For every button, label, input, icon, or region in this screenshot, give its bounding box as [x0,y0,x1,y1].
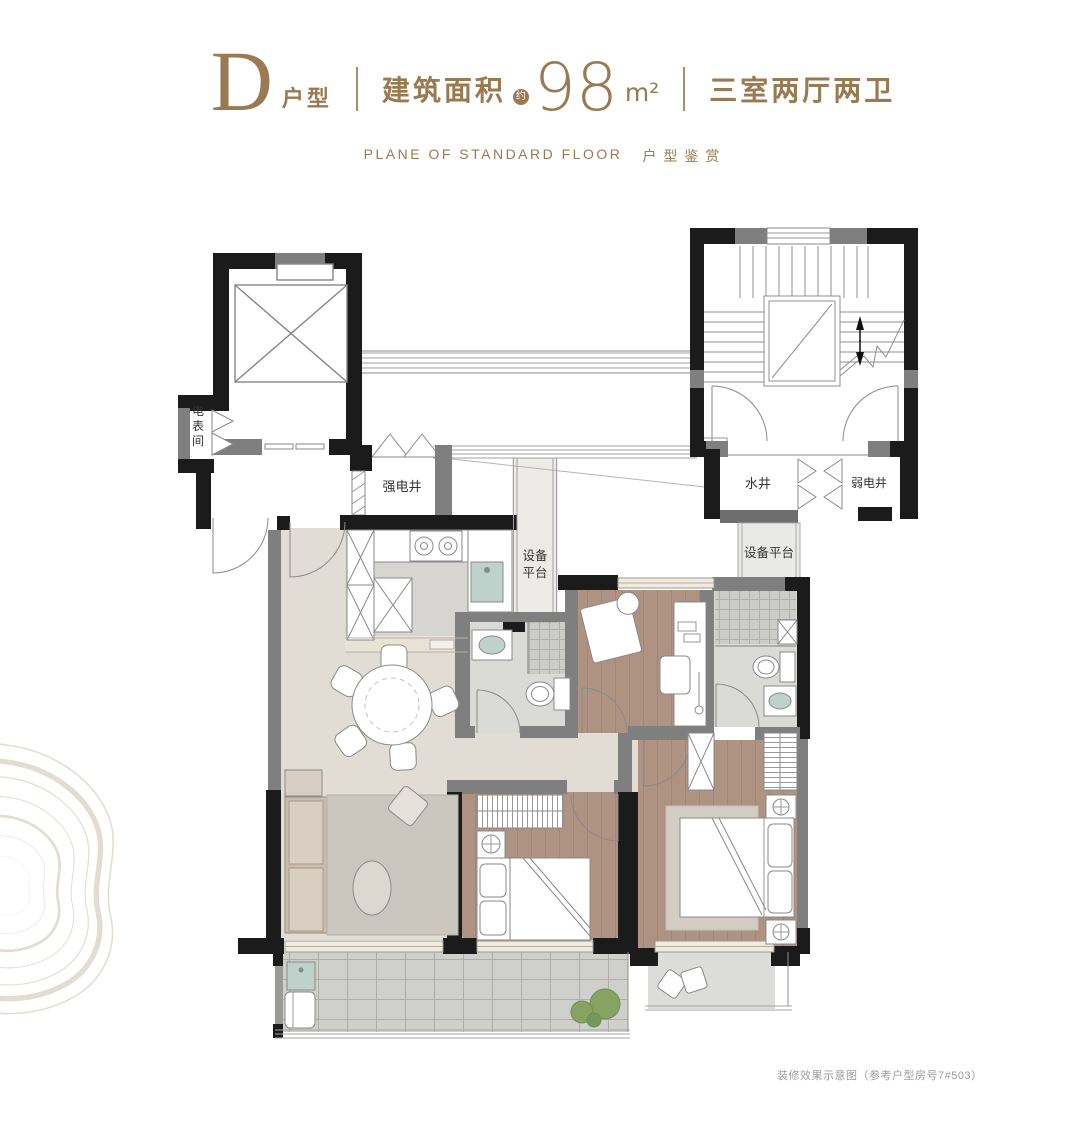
label-meter-room: 电表间 [190,404,206,449]
side-table [285,770,322,796]
approx-badge: 约 [513,89,529,105]
unit-letter: D [211,46,273,117]
pillow [768,871,792,913]
layout-label: 三室两厅两卫 [709,69,895,117]
footnote: 装修效果示意图（参考户型房号7#503） [777,1067,983,1083]
pillow [480,901,506,935]
ottoman [353,861,391,915]
master-window [655,941,774,952]
laundry-sink-icon [287,962,315,990]
stair-treads-icon [704,246,904,386]
header-divider [356,67,358,111]
stair-block [690,228,918,457]
label-strong-electric-shaft: 强电井 [363,479,441,494]
subtitle-zh: 户型鉴赏 [642,146,726,166]
stair-double-doors [712,386,898,441]
plan-header: D 户型 建筑面积 约 98 m² 三室两厅两卫 [0,46,1080,117]
pillow [480,864,506,897]
stove-icon [410,531,462,561]
sink-icon [769,693,791,709]
pillow [768,824,792,867]
living-window [285,941,443,952]
area-value: 98 [534,60,618,116]
lobby-door [213,518,268,573]
unit-suffix: 户型 [282,81,332,117]
dining-chair [390,743,417,771]
contour-decoration [0,744,113,1014]
sink-icon [479,636,505,654]
area-label: 建筑面积 [382,69,506,117]
living-set [285,770,458,935]
floorplan-page: D 户型 建筑面积 约 98 m² 三室两厅两卫 PLANE OF STANDA… [0,0,1080,1131]
header-divider [683,67,685,111]
floor-lamp-icon [695,706,703,714]
bedroom2-window [618,578,714,588]
washer-icon [285,992,315,1028]
desk-chair [660,656,690,694]
equipment-platform-side-floor [512,458,558,622]
rug [327,795,458,935]
plan-subtitle: PLANE OF STANDARD FLOOR 户型鉴赏 [0,146,1080,166]
label-weak-electric-shaft: 弱电井 [838,476,900,491]
label-water-shaft: 水井 [722,476,794,491]
label-equipment-platform-side: 设备平台 [521,548,549,582]
stair-direction-arrows [856,316,864,366]
area-unit: m² [625,78,659,117]
bedroom1-window [477,941,593,952]
subtitle-en: PLANE OF STANDARD FLOOR [364,146,623,166]
label-equipment-platform-top: 设备平台 [732,546,806,561]
elevator-car-icon [235,264,347,382]
